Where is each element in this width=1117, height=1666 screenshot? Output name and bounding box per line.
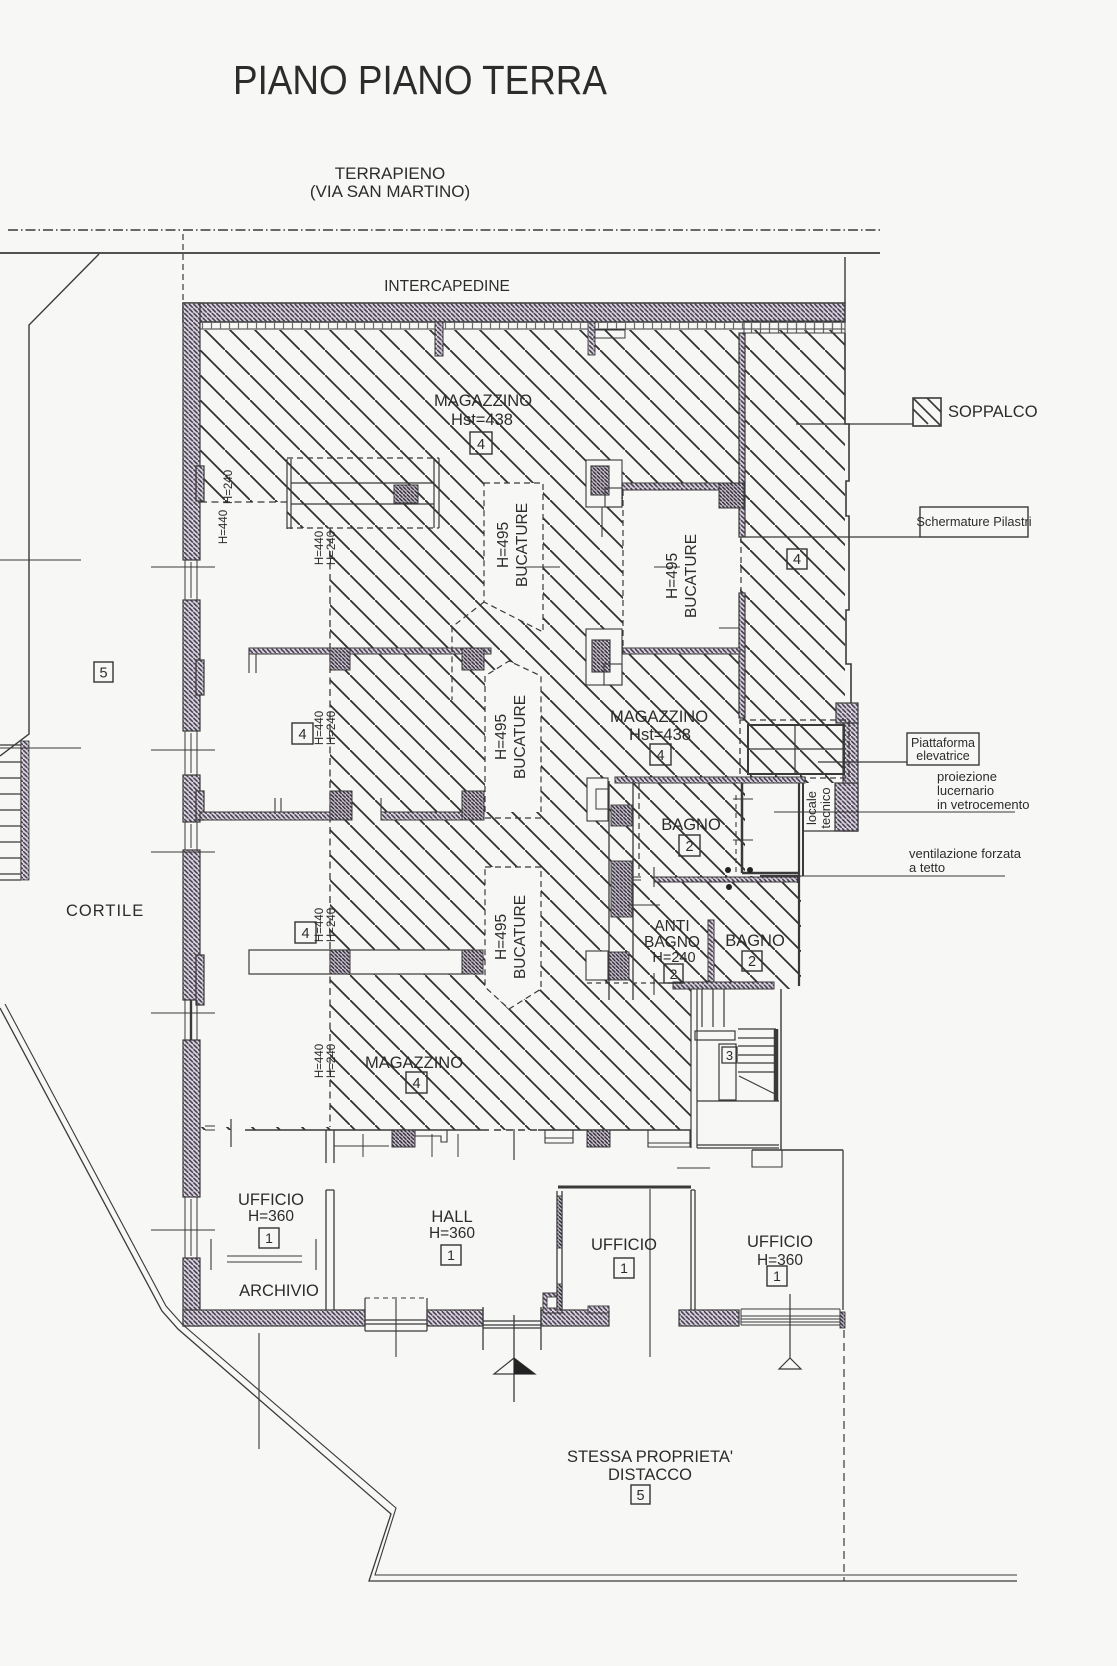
svg-text:BUCATURE: BUCATURE (512, 695, 529, 779)
svg-text:MAGAZZINO: MAGAZZINO (610, 708, 708, 726)
svg-text:H=240: H=240 (326, 908, 338, 942)
svg-text:CORTILE: CORTILE (66, 902, 144, 920)
svg-text:ANTI: ANTI (654, 918, 689, 935)
svg-text:PIANO PIANO TERRA: PIANO PIANO TERRA (233, 57, 608, 103)
svg-text:H=240: H=240 (326, 711, 338, 745)
svg-text:Hst=438: Hst=438 (629, 726, 691, 744)
svg-text:1: 1 (265, 1230, 273, 1246)
svg-text:H=440: H=440 (314, 1044, 326, 1078)
svg-text:H=440: H=440 (314, 908, 326, 942)
svg-text:2: 2 (748, 954, 756, 970)
svg-text:5: 5 (99, 666, 107, 682)
svg-text:BAGNO: BAGNO (644, 934, 700, 951)
svg-text:2: 2 (685, 839, 693, 855)
svg-text:ventilazione forzata: ventilazione forzata (909, 846, 1022, 861)
svg-text:(VIA SAN MARTINO): (VIA SAN MARTINO) (310, 182, 470, 201)
svg-text:4: 4 (301, 926, 309, 942)
svg-text:H=360: H=360 (429, 1225, 475, 1242)
svg-text:INTERCAPEDINE: INTERCAPEDINE (384, 278, 510, 295)
svg-text:BAGNO: BAGNO (661, 816, 721, 834)
svg-text:4: 4 (477, 437, 485, 453)
svg-text:BUCATURE: BUCATURE (683, 534, 700, 618)
svg-text:1: 1 (773, 1268, 781, 1284)
svg-text:H=495: H=495 (664, 553, 681, 599)
svg-text:H=240: H=240 (326, 1044, 338, 1078)
svg-text:UFFICIO: UFFICIO (238, 1191, 304, 1209)
svg-text:in vetrocemento: in vetrocemento (937, 797, 1030, 812)
svg-text:1: 1 (620, 1260, 628, 1276)
svg-text:Piattaforma: Piattaforma (911, 736, 975, 750)
svg-text:H=440: H=440 (314, 531, 326, 565)
svg-text:elevatrice: elevatrice (916, 749, 970, 763)
svg-text:tecnico: tecnico (818, 787, 833, 828)
svg-text:3: 3 (726, 1048, 733, 1063)
svg-text:H=440: H=440 (218, 510, 230, 544)
svg-text:BUCATURE: BUCATURE (514, 503, 531, 587)
svg-text:MAGAZZINO: MAGAZZINO (434, 392, 532, 410)
svg-text:2: 2 (670, 966, 678, 982)
svg-text:TERRAPIENO: TERRAPIENO (335, 164, 446, 183)
svg-text:4: 4 (412, 1076, 420, 1092)
svg-text:4: 4 (793, 552, 801, 568)
svg-text:STESSA PROPRIETA': STESSA PROPRIETA' (567, 1448, 733, 1466)
svg-text:a tetto: a tetto (909, 860, 945, 875)
svg-text:BUCATURE: BUCATURE (512, 895, 529, 979)
svg-text:H=240: H=240 (223, 470, 235, 504)
svg-text:UFFICIO: UFFICIO (747, 1233, 813, 1251)
svg-text:4: 4 (298, 727, 306, 743)
svg-text:H=495: H=495 (493, 914, 510, 960)
svg-text:locale: locale (804, 791, 819, 825)
svg-text:H=360: H=360 (248, 1208, 294, 1225)
svg-text:H=440: H=440 (314, 711, 326, 745)
svg-text:SOPPALCO: SOPPALCO (948, 403, 1038, 421)
svg-text:H=495: H=495 (495, 522, 512, 568)
svg-text:5: 5 (636, 1488, 644, 1504)
svg-text:BAGNO: BAGNO (725, 932, 785, 950)
svg-text:1: 1 (447, 1247, 455, 1263)
svg-text:HALL: HALL (431, 1208, 472, 1226)
svg-text:MAGAZZINO: MAGAZZINO (365, 1054, 463, 1072)
svg-text:lucernario: lucernario (937, 783, 994, 798)
svg-text:ARCHIVIO: ARCHIVIO (239, 1282, 319, 1300)
svg-text:H=240: H=240 (326, 531, 338, 565)
svg-text:UFFICIO: UFFICIO (591, 1236, 657, 1254)
svg-text:DISTACCO: DISTACCO (608, 1466, 692, 1484)
svg-text:4: 4 (656, 748, 664, 764)
svg-text:Schermature Pilastri: Schermature Pilastri (916, 514, 1031, 529)
svg-text:Hst=438: Hst=438 (451, 411, 513, 429)
svg-text:proiezione: proiezione (937, 769, 997, 784)
svg-text:H=495: H=495 (493, 714, 510, 760)
